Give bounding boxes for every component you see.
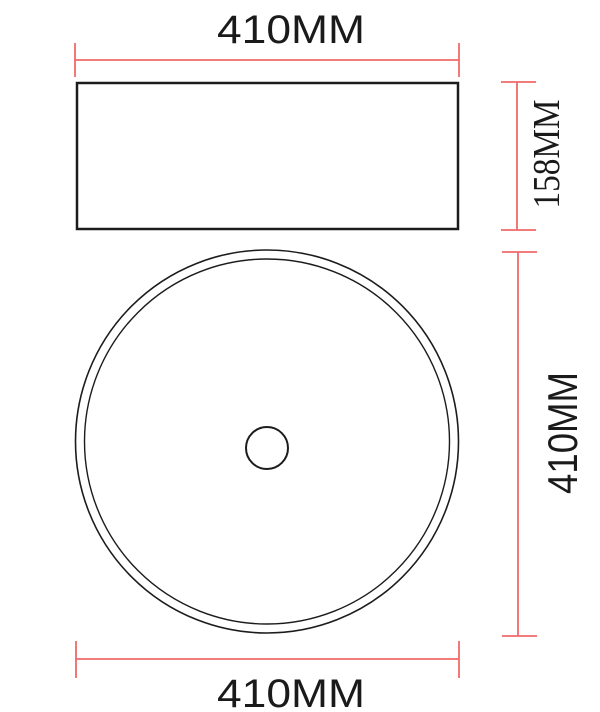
plan-view-inner-rim	[85, 259, 450, 624]
plan-diameter-label: 410MM	[539, 372, 586, 494]
basin-technical-drawing: 410MM 158MM 410MM 410MM	[0, 0, 600, 712]
dimension-labels: 410MM 158MM 410MM 410MM	[217, 8, 586, 712]
plan-view-outer-rim	[76, 250, 459, 633]
top-width-label: 410MM	[217, 8, 365, 52]
side-view-outline	[77, 83, 458, 229]
basin-outlines	[76, 83, 459, 633]
side-height-label: 158MM	[526, 100, 568, 209]
dimension-lines	[75, 43, 537, 678]
bottom-width-label: 410MM	[217, 672, 365, 712]
drain-hole-outline	[246, 427, 288, 469]
drawing-sheet: 410MM 158MM 410MM 410MM	[0, 0, 600, 712]
